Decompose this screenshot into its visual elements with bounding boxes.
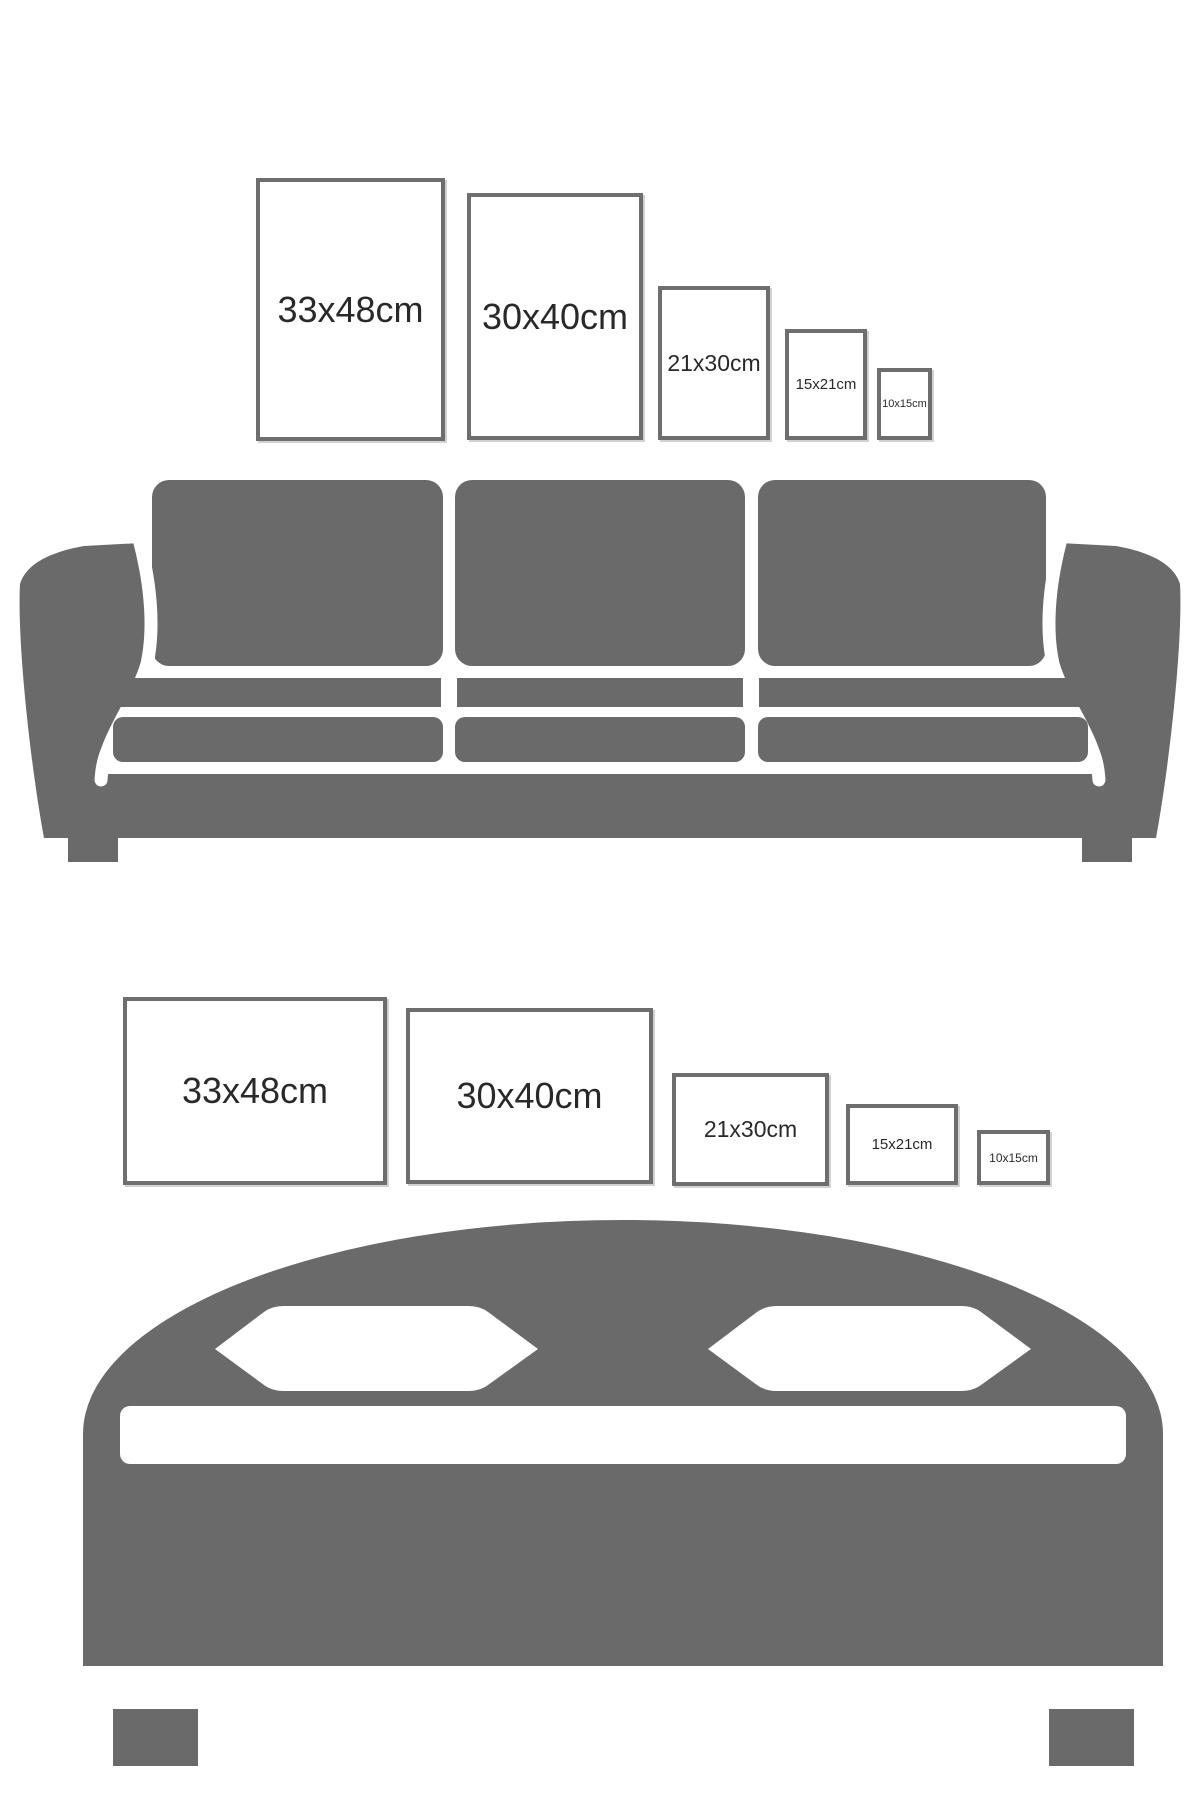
frame-size-label: 10x15cm (989, 1151, 1038, 1165)
frame-landscape-15x21: 15x21cm (846, 1104, 958, 1185)
sofa-back-cushion-right (758, 480, 1046, 666)
frame-size-label: 21x30cm (667, 350, 760, 377)
frame-size-label: 10x15cm (882, 398, 927, 410)
frame-size-label: 30x40cm (456, 1075, 602, 1117)
bed-leg-left (113, 1709, 198, 1766)
sofa-deck-gap-left (441, 670, 457, 714)
sofa-leg-right (1082, 838, 1132, 862)
sofa-seat-deck (118, 678, 1082, 707)
bed-base (83, 1470, 1163, 1666)
frame-portrait-21x30: 21x30cm (658, 286, 770, 440)
sofa-illustration (0, 430, 1200, 870)
poster-size-guide: 33x48cm 30x40cm 21x30cm 15x21cm 10x15cm (0, 0, 1200, 1800)
frame-landscape-10x15: 10x15cm (977, 1130, 1050, 1185)
sofa-leg-left (68, 838, 118, 862)
sofa-deck-gap-right (743, 670, 759, 714)
frame-size-label: 30x40cm (482, 296, 628, 338)
sofa-seat-cushion-left (113, 717, 443, 762)
frame-portrait-15x21: 15x21cm (785, 329, 867, 440)
bed-illustration (0, 1200, 1200, 1800)
frame-size-label: 15x21cm (796, 376, 857, 393)
frame-size-label: 15x21cm (872, 1136, 933, 1153)
sofa-back-cushion-middle (455, 480, 745, 666)
frame-landscape-21x30: 21x30cm (672, 1073, 829, 1186)
frame-size-label: 33x48cm (182, 1070, 328, 1112)
frame-landscape-30x40: 30x40cm (406, 1008, 653, 1184)
bed-mattress-band (120, 1406, 1126, 1464)
frame-portrait-30x40: 30x40cm (467, 193, 643, 440)
frame-size-label: 33x48cm (277, 289, 423, 331)
sofa-seat-cushion-right (758, 717, 1088, 762)
bed-pillow-right (708, 1306, 1031, 1391)
sofa-back-cushion-left (152, 480, 443, 666)
bed-pillow-left (215, 1306, 538, 1391)
frame-landscape-33x48: 33x48cm (123, 997, 387, 1185)
frame-portrait-33x48: 33x48cm (256, 178, 445, 441)
sofa-seat-cushion-middle (455, 717, 745, 762)
bed-leg-right (1049, 1709, 1134, 1766)
frame-size-label: 21x30cm (704, 1116, 797, 1143)
